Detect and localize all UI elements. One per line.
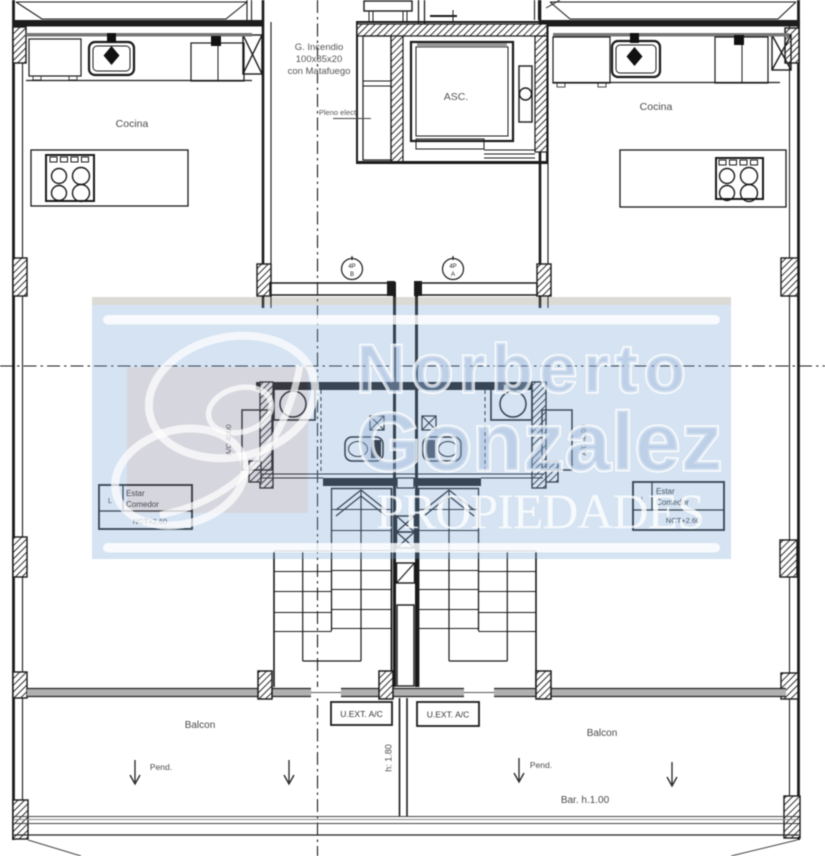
- svg-text:PROPIEDADES: PROPIEDADES: [376, 483, 704, 539]
- svg-text:4P: 4P: [348, 264, 355, 270]
- svg-text:con Matafuego: con Matafuego: [288, 66, 351, 77]
- svg-text:B: B: [350, 272, 354, 278]
- svg-text:ASC.: ASC.: [444, 91, 469, 103]
- svg-text:Gonzalez: Gonzalez: [357, 397, 723, 488]
- svg-text:Pend.: Pend.: [530, 760, 552, 770]
- svg-text:h: 1.80: h: 1.80: [384, 744, 394, 772]
- svg-text:Cocina: Cocina: [116, 118, 149, 130]
- svg-text:100x85x20: 100x85x20: [296, 54, 342, 65]
- svg-text:Cocina: Cocina: [640, 101, 673, 113]
- svg-text:4P: 4P: [449, 264, 456, 270]
- svg-text:Pleno elect: Pleno elect: [319, 108, 357, 117]
- svg-text:U.EXT. A/C: U.EXT. A/C: [427, 710, 470, 720]
- svg-text:Norberto: Norberto: [356, 331, 691, 407]
- svg-text:Balcon: Balcon: [185, 720, 216, 731]
- svg-text:Pend.: Pend.: [150, 762, 172, 772]
- svg-text:Balcon: Balcon: [587, 728, 618, 739]
- svg-text:G. Incendio: G. Incendio: [295, 42, 344, 53]
- svg-text:Bar. h.1.00: Bar. h.1.00: [561, 795, 610, 806]
- svg-text:U.EXT. A/C: U.EXT. A/C: [340, 709, 383, 719]
- svg-text:A: A: [451, 272, 455, 278]
